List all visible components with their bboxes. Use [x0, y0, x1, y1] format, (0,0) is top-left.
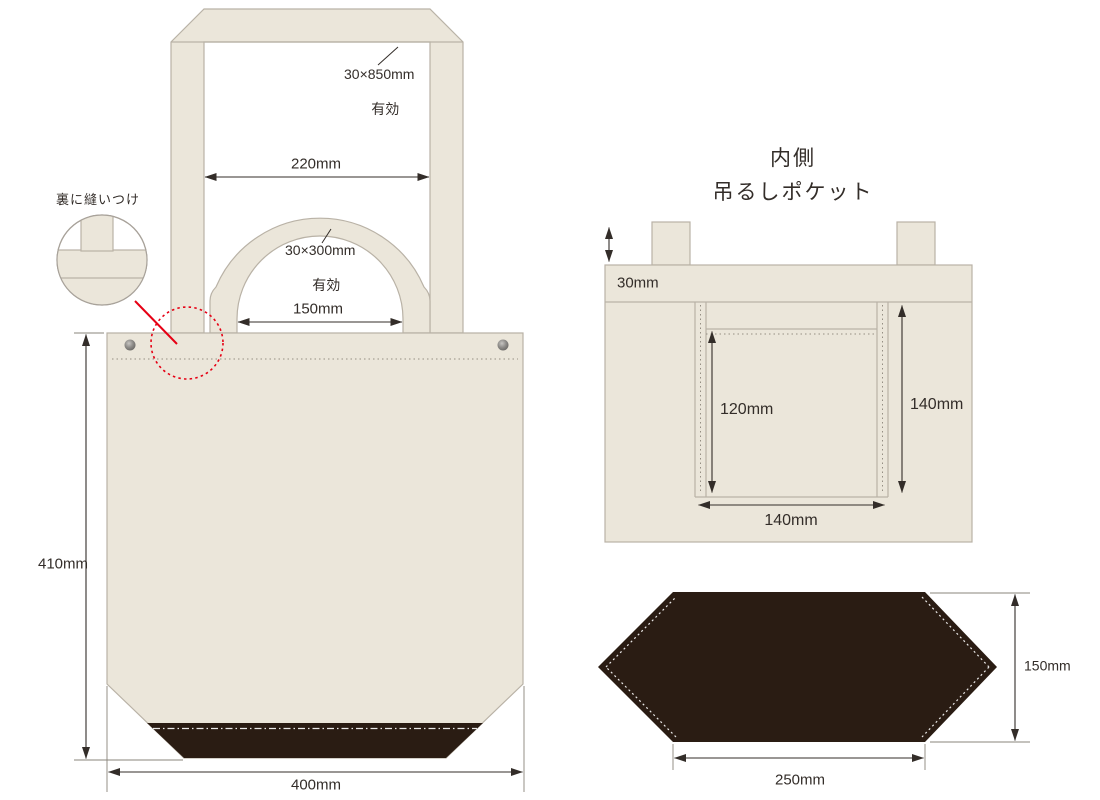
strap-note-leader: [378, 47, 398, 65]
right-rivet: [498, 340, 509, 351]
fold-dimension: 30mm: [617, 275, 659, 294]
bag-width-dimension: 400mm: [291, 777, 341, 796]
inside-view: [605, 222, 972, 542]
inside-strap-stub-right: [897, 222, 935, 265]
strap-opening-dimension: 220mm: [291, 156, 341, 175]
strap-size-label: 30×850mm 有効: [344, 66, 414, 119]
pocket-height-dimension: 140mm: [910, 395, 963, 415]
inside-view-title: 内側: [770, 146, 816, 172]
strap-size-line1: 30×850mm: [344, 66, 414, 82]
tote-front-view: [50, 9, 524, 792]
gusset-height-dimension: 150mm: [1024, 657, 1071, 675]
handle-size-label: 30×300mm 有効: [285, 242, 355, 295]
handle-size-line2: 有効: [312, 277, 340, 293]
handle-opening-dimension: 150mm: [293, 301, 343, 320]
strap-stitch-detail-magnifier: [50, 210, 154, 312]
pocket-width-dimension: 140mm: [764, 511, 817, 531]
pocket-depth-dimension: 120mm: [720, 400, 773, 420]
left-rivet: [125, 340, 136, 351]
inside-view-subtitle: 吊るしポケット: [713, 180, 874, 206]
bag-body-shape: [107, 333, 523, 758]
strap-size-line2: 有効: [371, 101, 399, 117]
inside-strap-stub-left: [652, 222, 690, 265]
bottom-gusset-view: [598, 592, 1030, 770]
back-stitch-note: 裏に縫いつけ: [56, 192, 140, 208]
gusset-width-ext-lines: [673, 744, 925, 770]
bag-height-dimension: 410mm: [38, 556, 88, 575]
tote-bag-spec-sheet: 30×850mm 有効 30×300mm 有効 220mm 150mm 410m…: [0, 0, 1100, 800]
gusset-width-dimension: 250mm: [775, 772, 825, 791]
handle-size-line1: 30×300mm: [285, 242, 355, 258]
